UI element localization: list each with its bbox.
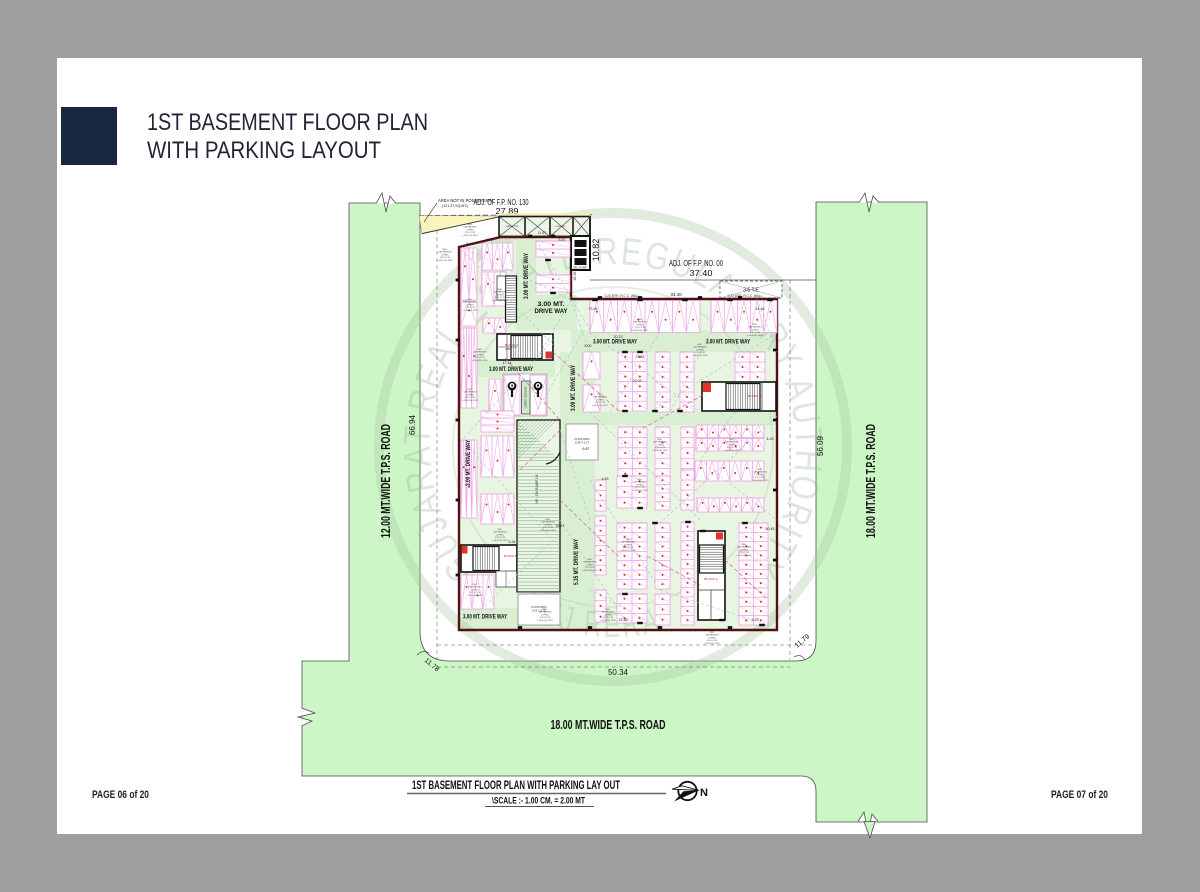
svg-text:23.03: 23.03: [633, 379, 642, 383]
svg-text:= 58.00 SQ. MTS.: = 58.00 SQ. MTS.: [537, 620, 554, 622]
svg-text:5.29: 5.29: [752, 618, 759, 622]
svg-text:5.25 X 5.25: 5.25 X 5.25: [543, 527, 554, 529]
svg-text:WATER TNK: WATER TNK: [506, 225, 519, 228]
svg-text:50.34: 50.34: [608, 668, 629, 677]
svg-text:CAR PARKING: CAR PARKING: [473, 351, 487, 354]
svg-text:RES.: RES.: [658, 439, 663, 441]
svg-text:= 58.00 SQ. MTS.: = 58.00 SQ. MTS.: [462, 400, 479, 402]
svg-text:= 58.00 SQ. MTS.: = 58.00 SQ. MTS.: [472, 360, 489, 362]
svg-text:= 58.00 SQ. MTS.: = 58.00 SQ. MTS.: [592, 405, 609, 407]
svg-text:5.25 X 5.25: 5.25 X 5.25: [540, 617, 551, 619]
svg-text:(OPEN): (OPEN): [477, 354, 484, 356]
svg-text:RES.: RES.: [710, 632, 715, 634]
svg-text:= 58.00 SQ. MTS.: = 58.00 SQ. MTS.: [632, 490, 649, 492]
svg-text:CAR PARKING: CAR PARKING: [725, 441, 739, 444]
svg-text:10.82: 10.82: [591, 239, 601, 262]
svg-text:GRD.: GRD.: [505, 348, 511, 351]
svg-text:RES.: RES.: [468, 299, 473, 301]
svg-text:= 58.00 SQ. MTS.: = 58.00 SQ. MTS.: [692, 355, 709, 357]
svg-text:RES.: RES.: [638, 479, 643, 481]
svg-text:RES.: RES.: [546, 519, 551, 521]
svg-text:5.25 X 5.25: 5.25 X 5.25: [495, 297, 506, 299]
svg-text:= 58.00 SQ. MTS.: = 58.00 SQ. MTS.: [462, 235, 479, 237]
svg-text:CAR PARKING: CAR PARKING: [621, 541, 635, 544]
svg-text:BLOCK-B: BLOCK-B: [748, 394, 761, 398]
svg-text:= 58.00 SQ. MTS.: = 58.00 SQ. MTS.: [620, 550, 637, 552]
svg-text:3.00 MT. DRIVE WAY: 3.00 MT. DRIVE WAY: [593, 339, 638, 346]
svg-text:RES.: RES.: [758, 469, 763, 471]
svg-text:PAGE 07 of 20: PAGE 07 of 20: [1051, 789, 1108, 801]
svg-text:28.26: 28.26: [573, 272, 577, 281]
svg-text:CAR PARKING: CAR PARKING: [583, 561, 597, 564]
svg-text:= 58.00 SQ. MTS.: = 58.00 SQ. MTS.: [467, 595, 484, 597]
svg-text:(OPEN): (OPEN): [467, 229, 474, 231]
svg-text:ADJ. OF F.P. NO. 00: ADJ. OF F.P. NO. 00: [669, 258, 723, 268]
svg-text:CAR PARKING: CAR PARKING: [541, 521, 555, 524]
svg-text:BLOCK-A: BLOCK-A: [704, 577, 717, 581]
svg-text:= 58.00 SQ. MTS.: = 58.00 SQ. MTS.: [582, 570, 599, 572]
svg-text:CAR PARKING: CAR PARKING: [633, 481, 647, 484]
svg-text:BLOCK-B: BLOCK-B: [504, 554, 517, 558]
svg-text:= 58.00 SQ. MTS.: = 58.00 SQ. MTS.: [462, 310, 479, 312]
svg-text:5.25 X 5.25: 5.25 X 5.25: [495, 537, 506, 539]
svg-text:3.00 MT. DRIVE WAY: 3.00 MT. DRIVE WAY: [466, 440, 472, 486]
svg-text:(OPEN): (OPEN): [597, 399, 604, 401]
svg-text:CAR PARKING: CAR PARKING: [737, 546, 751, 549]
svg-text:= 58.00 SQ. MTS.: = 58.00 SQ. MTS.: [747, 335, 764, 337]
svg-text:(OPEN): (OPEN): [545, 524, 552, 526]
svg-text:5.49: 5.49: [606, 297, 613, 301]
svg-text:5.25 X 5.25: 5.25 X 5.25: [440, 257, 451, 259]
svg-text:= 58.00 SQ. MTS.: = 58.00 SQ. MTS.: [632, 330, 649, 332]
svg-text:12.00 MT.WIDE T.P.S. ROAD: 12.00 MT.WIDE T.P.S. ROAD: [379, 424, 393, 538]
svg-text:(121.37 SQ.MT.): (121.37 SQ.MT.): [442, 204, 468, 208]
svg-text:LI.MC.RM: LI.MC.RM: [555, 226, 565, 228]
svg-text:CAR PARKING: CAR PARKING: [693, 346, 707, 349]
svg-text:= 58.00 SQ. MTS.: = 58.00 SQ. MTS.: [752, 480, 769, 482]
svg-text:RES.: RES.: [730, 439, 735, 441]
svg-text:= 58.00 SQ. MTS.: = 58.00 SQ. MTS.: [736, 555, 753, 557]
svg-text:WITH PARKING LAYOUT: WITH PARKING LAYOUT: [147, 137, 381, 164]
svg-text:0.23 MTR. R.C.C. WALL: 0.23 MTR. R.C.C. WALL: [728, 294, 763, 298]
svg-text:17.14: 17.14: [503, 361, 512, 365]
svg-text:(OPEN): (OPEN): [697, 349, 704, 351]
svg-text:5.25 X 5.25: 5.25 X 5.25: [755, 477, 766, 479]
svg-text:3.00 MT.: 3.00 MT.: [538, 301, 565, 308]
svg-text:\SCALE :- 1.00 CM. = 2.00 MT: \SCALE :- 1.00 CM. = 2.00 MT: [492, 796, 585, 806]
svg-text:RES.: RES.: [478, 349, 483, 351]
svg-text:RES.: RES.: [606, 609, 611, 611]
svg-text:RES.: RES.: [468, 389, 473, 391]
svg-text:6.87: 6.87: [583, 447, 590, 451]
svg-text:RES.: RES.: [588, 559, 593, 561]
svg-text:5.34: 5.34: [509, 540, 516, 544]
svg-text:CAR PARKING: CAR PARKING: [705, 634, 719, 637]
svg-text:5.25 X 5.25: 5.25 X 5.25: [707, 640, 718, 642]
svg-text:5.25 X 5.25: 5.25 X 5.25: [475, 357, 486, 359]
svg-text:14.46: 14.46: [756, 307, 765, 311]
svg-text:3.00 MT. DRIVE WAY: 3.00 MT. DRIVE WAY: [463, 614, 508, 621]
svg-text:(OPEN): (OPEN): [625, 544, 632, 546]
svg-text:1ST BASEMENT FLOOR PLAN: 1ST BASEMENT FLOOR PLAN: [147, 109, 428, 136]
svg-text:5.25 X 5.25: 5.25 X 5.25: [603, 617, 614, 619]
svg-text:CAR PARKING: CAR PARKING: [601, 611, 615, 614]
svg-text:5.25 X 5.25: 5.25 X 5.25: [739, 552, 750, 554]
svg-text:3.00 MT. DRIVE WAY: 3.00 MT. DRIVE WAY: [571, 365, 577, 411]
svg-text:CAR PARKING: CAR PARKING: [753, 471, 767, 474]
svg-text:CAR PARKING: CAR PARKING: [633, 321, 647, 324]
svg-text:5.25 X 5.25: 5.25 X 5.25: [470, 592, 481, 594]
svg-text:56.09: 56.09: [816, 435, 825, 456]
svg-text:= 58.00 SQ. MTS.: = 58.00 SQ. MTS.: [724, 450, 741, 452]
svg-text:5.25 X 5.25: 5.25 X 5.25: [623, 547, 634, 549]
svg-text:(OPEN): (OPEN): [472, 589, 479, 591]
svg-text:5.25 X 5.25: 5.25 X 5.25: [635, 487, 646, 489]
svg-text:37.40: 37.40: [690, 268, 713, 278]
svg-text:RES.: RES.: [638, 319, 643, 321]
svg-text:18.00 MT.WIDE T.P.S. ROAD: 18.00 MT.WIDE T.P.S. ROAD: [551, 717, 666, 732]
svg-text:(OPEN): (OPEN): [637, 484, 644, 486]
svg-text:23.26: 23.26: [619, 618, 628, 622]
svg-text:5.25 X 5.25: 5.25 X 5.25: [750, 332, 761, 334]
svg-text:1ST BASEMENT FLOOR PLAN WITH P: 1ST BASEMENT FLOOR PLAN WITH PARKING LAY…: [412, 780, 620, 792]
svg-text:= 58.00 SQ. MTS.: = 58.00 SQ. MTS.: [437, 260, 454, 262]
svg-text:RES.: RES.: [753, 324, 758, 326]
svg-text:(OPEN): (OPEN): [605, 614, 612, 616]
svg-text:5.25 X 5.25: 5.25 X 5.25: [465, 232, 476, 234]
svg-text:(OPEN): (OPEN): [637, 324, 644, 326]
svg-text:RES.: RES.: [698, 344, 703, 346]
svg-text:CAR PARKING: CAR PARKING: [653, 441, 667, 444]
svg-text:(OPEN): (OPEN): [542, 614, 549, 616]
svg-text:8.00: 8.00: [585, 344, 592, 348]
svg-text:N: N: [700, 787, 708, 799]
svg-text:CAR PARKING: CAR PARKING: [493, 291, 507, 294]
svg-text:15.47: 15.47: [556, 524, 565, 528]
svg-text:= 58.00 SQ. MTS.: = 58.00 SQ. MTS.: [600, 620, 617, 622]
svg-text:5.25 X 5.25: 5.25 X 5.25: [465, 397, 476, 399]
svg-text:CAR PARKING: CAR PARKING: [538, 611, 552, 614]
svg-text:CAR PARKING: CAR PARKING: [463, 301, 477, 304]
svg-text:3.00 MT. DRIVE WAY: 3.00 MT. DRIVE WAY: [489, 366, 534, 373]
svg-text:(OPEN): (OPEN): [497, 294, 504, 296]
svg-text:UP - DN RAMP 1:8: UP - DN RAMP 1:8: [535, 474, 539, 503]
svg-text:5.67: 5.67: [559, 238, 566, 242]
svg-text:CAR PARKING: CAR PARKING: [493, 531, 507, 534]
svg-text:4.25: 4.25: [767, 437, 774, 441]
svg-text:(OPEN): (OPEN): [497, 534, 504, 536]
svg-text:RES.: RES.: [498, 529, 503, 531]
svg-text:(OPEN): (OPEN): [657, 444, 664, 446]
svg-text:4.53: 4.53: [602, 477, 609, 481]
svg-text:5.25 X 5.25: 5.25 X 5.25: [695, 352, 706, 354]
svg-text:PAGE 06 of 20: PAGE 06 of 20: [92, 789, 149, 801]
svg-text:5.25 X 5.25: 5.25 X 5.25: [727, 447, 738, 449]
svg-text:= 58.00 SQ. MTS.: = 58.00 SQ. MTS.: [652, 450, 669, 452]
svg-text:(OPEN): (OPEN): [741, 549, 748, 551]
svg-text:CAR PARKING: CAR PARKING: [438, 251, 452, 254]
svg-text:RES.: RES.: [498, 289, 503, 291]
svg-text:CAR PARKING: CAR PARKING: [748, 326, 762, 329]
svg-text:3.5 T.E: 3.5 T.E: [743, 288, 759, 294]
svg-text:RES.: RES.: [468, 224, 473, 226]
svg-text:CAR PARKING: CAR PARKING: [463, 391, 477, 394]
svg-text:50.45: 50.45: [766, 527, 775, 531]
svg-text:(OPEN): (OPEN): [757, 474, 764, 476]
svg-text:73.96: 73.96: [589, 307, 598, 311]
svg-text:= 58.00 SQ. MTS.: = 58.00 SQ. MTS.: [704, 643, 721, 645]
svg-text:= 58.00 SQ. MTS.: = 58.00 SQ. MTS.: [492, 300, 509, 302]
svg-text:LOWER GROUND: LOWER GROUND: [524, 386, 528, 408]
svg-text:RES.: RES.: [473, 584, 478, 586]
svg-text:3.00 MT. DRIVE WAY: 3.00 MT. DRIVE WAY: [524, 253, 530, 299]
svg-text:5.25 X 5.25: 5.25 X 5.25: [655, 447, 666, 449]
svg-text:5.25 X 5.25: 5.25 X 5.25: [635, 327, 646, 329]
svg-text:RES.: RES.: [443, 249, 448, 251]
svg-text:5.25 X 5.25: 5.25 X 5.25: [465, 307, 476, 309]
svg-text:(OPEN): (OPEN): [467, 394, 474, 396]
svg-text:3.00 MT. DRIVE WAY: 3.00 MT. DRIVE WAY: [706, 339, 751, 346]
svg-text:5.35 MT. DRIVE WAY: 5.35 MT. DRIVE WAY: [574, 539, 580, 585]
svg-text:RES.: RES.: [543, 609, 548, 611]
svg-text:(OPEN): (OPEN): [467, 304, 474, 306]
svg-text:5.08 X 6.27: 5.08 X 6.27: [575, 441, 590, 445]
svg-text:RES.: RES.: [742, 544, 747, 546]
svg-text:34.40: 34.40: [670, 292, 682, 297]
svg-text:RES.: RES.: [598, 394, 603, 396]
svg-text:CAR PARKING: CAR PARKING: [593, 396, 607, 399]
svg-text:5.25 X 5.25: 5.25 X 5.25: [595, 402, 606, 404]
svg-text:20.23: 20.23: [614, 335, 623, 339]
svg-text:4.05: 4.05: [486, 238, 493, 242]
svg-text:18.00 MT.WIDE T.P.S. ROAD: 18.00 MT.WIDE T.P.S. ROAD: [864, 424, 878, 538]
svg-text:5.35: 5.35: [540, 235, 547, 239]
svg-text:CAR PARKING: CAR PARKING: [468, 586, 482, 589]
svg-text:SEC.PUMP: SEC.PUMP: [573, 266, 587, 270]
svg-text:5.41: 5.41: [467, 242, 474, 246]
svg-text:(OPEN): (OPEN): [442, 254, 449, 256]
svg-text:5.25 X 5.25: 5.25 X 5.25: [585, 567, 596, 569]
svg-text:66.94: 66.94: [408, 414, 417, 435]
svg-text:CAR PARKING: CAR PARKING: [463, 226, 477, 229]
svg-text:23.57: 23.57: [636, 355, 645, 359]
svg-text:(OPEN): (OPEN): [709, 637, 716, 639]
svg-text:(OPEN): (OPEN): [587, 564, 594, 566]
svg-text:= 58.00 SQ. MTS.: = 58.00 SQ. MTS.: [540, 530, 557, 532]
svg-text:(OPEN): (OPEN): [729, 444, 736, 446]
svg-text:= 58.00 SQ. MTS.: = 58.00 SQ. MTS.: [492, 540, 509, 542]
svg-text:RES.: RES.: [626, 539, 631, 541]
svg-text:(OPEN): (OPEN): [752, 329, 759, 331]
svg-text:DRIVE WAY: DRIVE WAY: [535, 308, 569, 315]
